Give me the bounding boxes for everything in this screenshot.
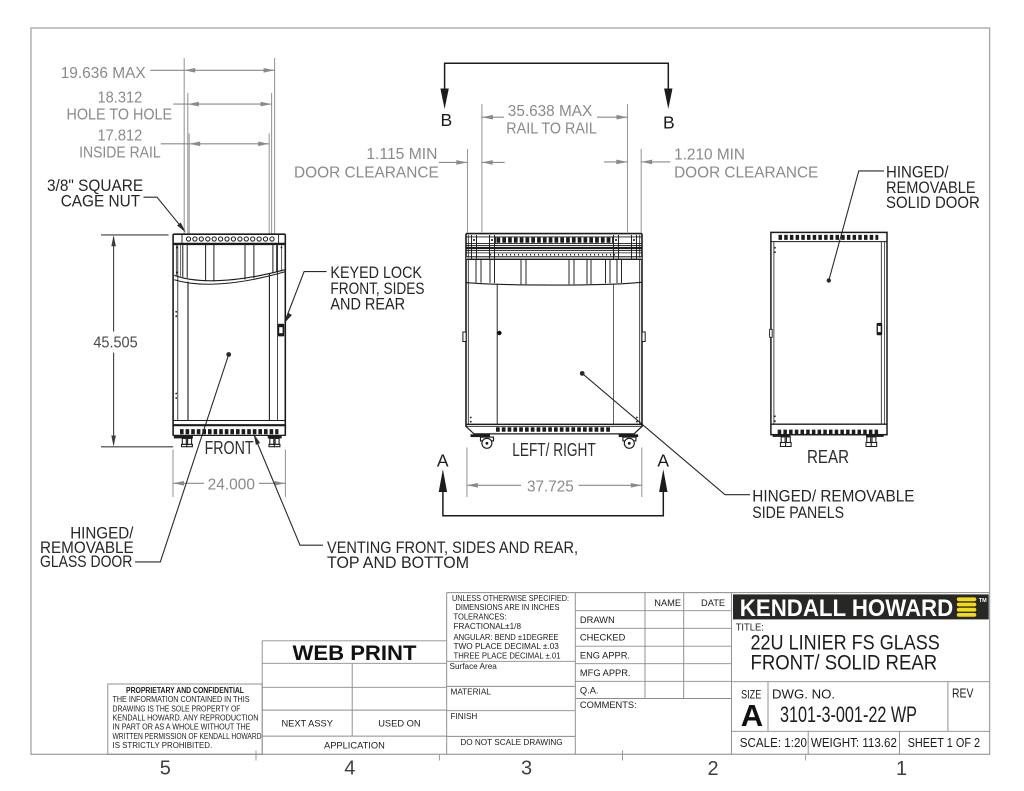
svg-text:DATE: DATE	[701, 598, 725, 608]
svg-text:REV: REV	[952, 687, 974, 701]
svg-text:1.210 MIN: 1.210 MIN	[674, 146, 745, 163]
svg-text:MATERIAL: MATERIAL	[451, 687, 492, 696]
svg-text:APPLICATION: APPLICATION	[324, 740, 385, 750]
svg-text:KENDALL HOWARD: KENDALL HOWARD	[740, 595, 953, 622]
svg-text:THE INFORMATION CONTAINED IN T: THE INFORMATION CONTAINED IN THIS	[113, 695, 250, 704]
svg-text:DRAWN: DRAWN	[580, 615, 615, 625]
svg-text:IN PART OR AS A WHOLE WITHOUT: IN PART OR AS A WHOLE WITHOUT THE	[113, 723, 251, 732]
svg-text:SOLID DOOR: SOLID DOOR	[886, 194, 980, 212]
svg-text:37.725: 37.725	[527, 478, 574, 495]
svg-text:GLASS DOOR: GLASS DOOR	[40, 553, 132, 571]
svg-text:DO NOT SCALE DRAWING: DO NOT SCALE DRAWING	[460, 738, 562, 747]
svg-text:KENDALL HOWARD. ANY REPRODUCT: KENDALL HOWARD. ANY REPRODUCTION	[113, 714, 259, 723]
svg-text:SHEET 1 OF 2: SHEET 1 OF 2	[908, 736, 981, 750]
svg-text:B: B	[440, 110, 452, 130]
svg-text:3: 3	[521, 758, 532, 780]
svg-text:SCALE: 1:20: SCALE: 1:20	[740, 736, 807, 750]
svg-text:WEB PRINT: WEB PRINT	[293, 641, 417, 665]
svg-text:WEIGHT: 113.62: WEIGHT: 113.62	[811, 736, 897, 750]
svg-text:HOLE TO HOLE: HOLE TO HOLE	[67, 107, 173, 124]
svg-text:DRAWING IS THE SOLE PROPERTY O: DRAWING IS THE SOLE PROPERTY OF	[113, 704, 241, 713]
svg-text:TM: TM	[979, 598, 987, 604]
svg-text:DOOR CLEARANCE: DOOR CLEARANCE	[674, 165, 818, 182]
svg-text:24.000: 24.000	[208, 476, 255, 493]
svg-text:A: A	[657, 450, 669, 470]
svg-text:A: A	[437, 450, 449, 470]
svg-text:3101-3-001-22 WP: 3101-3-001-22 WP	[780, 702, 917, 727]
svg-text:LEFT/ RIGHT: LEFT/ RIGHT	[512, 440, 596, 460]
svg-text:AND REAR: AND REAR	[330, 296, 405, 314]
svg-text:1.115 MIN: 1.115 MIN	[366, 146, 437, 163]
svg-text:CHECKED: CHECKED	[580, 633, 626, 643]
svg-text:THREE PLACE DECIMAL ±.01: THREE PLACE DECIMAL ±.01	[454, 652, 561, 661]
svg-text:B: B	[663, 113, 675, 133]
svg-text:NAME: NAME	[654, 598, 681, 608]
svg-text:FRONT: FRONT	[205, 438, 254, 458]
svg-text:17.812: 17.812	[98, 127, 143, 144]
svg-text:FRONT/ SOLID REAR: FRONT/ SOLID REAR	[751, 651, 938, 675]
svg-text:UNLESS OTHERWISE SPECIFIED:: UNLESS OTHERWISE SPECIFIED:	[452, 594, 569, 603]
svg-text:4: 4	[344, 758, 355, 780]
svg-text:ANGULAR: BEND ±1DEGREE: ANGULAR: BEND ±1DEGREE	[454, 633, 559, 642]
svg-text:DWG. NO.: DWG. NO.	[772, 687, 835, 701]
svg-text:45.505: 45.505	[93, 335, 137, 352]
svg-text:PROPRIETARY AND CONFIDENTIAL: PROPRIETARY AND CONFIDENTIAL	[126, 686, 244, 695]
svg-text:19.636 MAX: 19.636 MAX	[61, 65, 146, 82]
svg-text:DIMENSIONS ARE IN INCHES: DIMENSIONS ARE IN INCHES	[456, 603, 560, 612]
svg-text:FINISH: FINISH	[451, 712, 478, 721]
svg-text:INSIDE RAIL: INSIDE RAIL	[79, 145, 161, 162]
svg-text:18.312: 18.312	[98, 89, 143, 106]
svg-text:USED ON: USED ON	[378, 718, 420, 728]
svg-text:TOLERANCES:: TOLERANCES:	[454, 613, 507, 622]
svg-text:HINGED/ REMOVABLE: HINGED/ REMOVABLE	[752, 487, 914, 505]
svg-text:ENG APPR.: ENG APPR.	[580, 650, 630, 660]
svg-text:5: 5	[160, 757, 171, 779]
svg-text:NEXT ASSY: NEXT ASSY	[281, 718, 333, 728]
svg-text:Q.A.: Q.A.	[580, 685, 599, 695]
svg-text:REAR: REAR	[807, 447, 849, 467]
svg-text:A: A	[741, 698, 763, 733]
svg-text:TOP AND BOTTOM: TOP AND BOTTOM	[327, 554, 469, 572]
svg-text:DOOR CLEARANCE: DOOR CLEARANCE	[294, 165, 439, 182]
svg-text:TWO PLACE DECIMAL ±.03: TWO PLACE DECIMAL ±.03	[454, 642, 560, 651]
svg-text:FRACTIONAL±1/8: FRACTIONAL±1/8	[454, 622, 522, 631]
svg-text:IS STRICTLY PROHIBITED.: IS STRICTLY PROHIBITED.	[113, 741, 213, 750]
svg-text:COMMENTS:: COMMENTS:	[580, 700, 637, 710]
svg-text:1: 1	[896, 758, 907, 780]
svg-text:35.638 MAX: 35.638 MAX	[508, 103, 593, 120]
svg-text:RAIL TO RAIL: RAIL TO RAIL	[506, 121, 597, 138]
svg-text:Surface Area: Surface Area	[450, 662, 498, 671]
svg-text:CAGE NUT: CAGE NUT	[61, 192, 140, 210]
svg-text:MFG APPR.: MFG APPR.	[580, 668, 631, 678]
svg-text:SIDE PANELS: SIDE PANELS	[752, 504, 844, 522]
svg-text:WRITTEN PERMISSION OF KENDALL: WRITTEN PERMISSION OF KENDALL HOWARD	[113, 732, 262, 741]
svg-text:2: 2	[707, 758, 718, 780]
